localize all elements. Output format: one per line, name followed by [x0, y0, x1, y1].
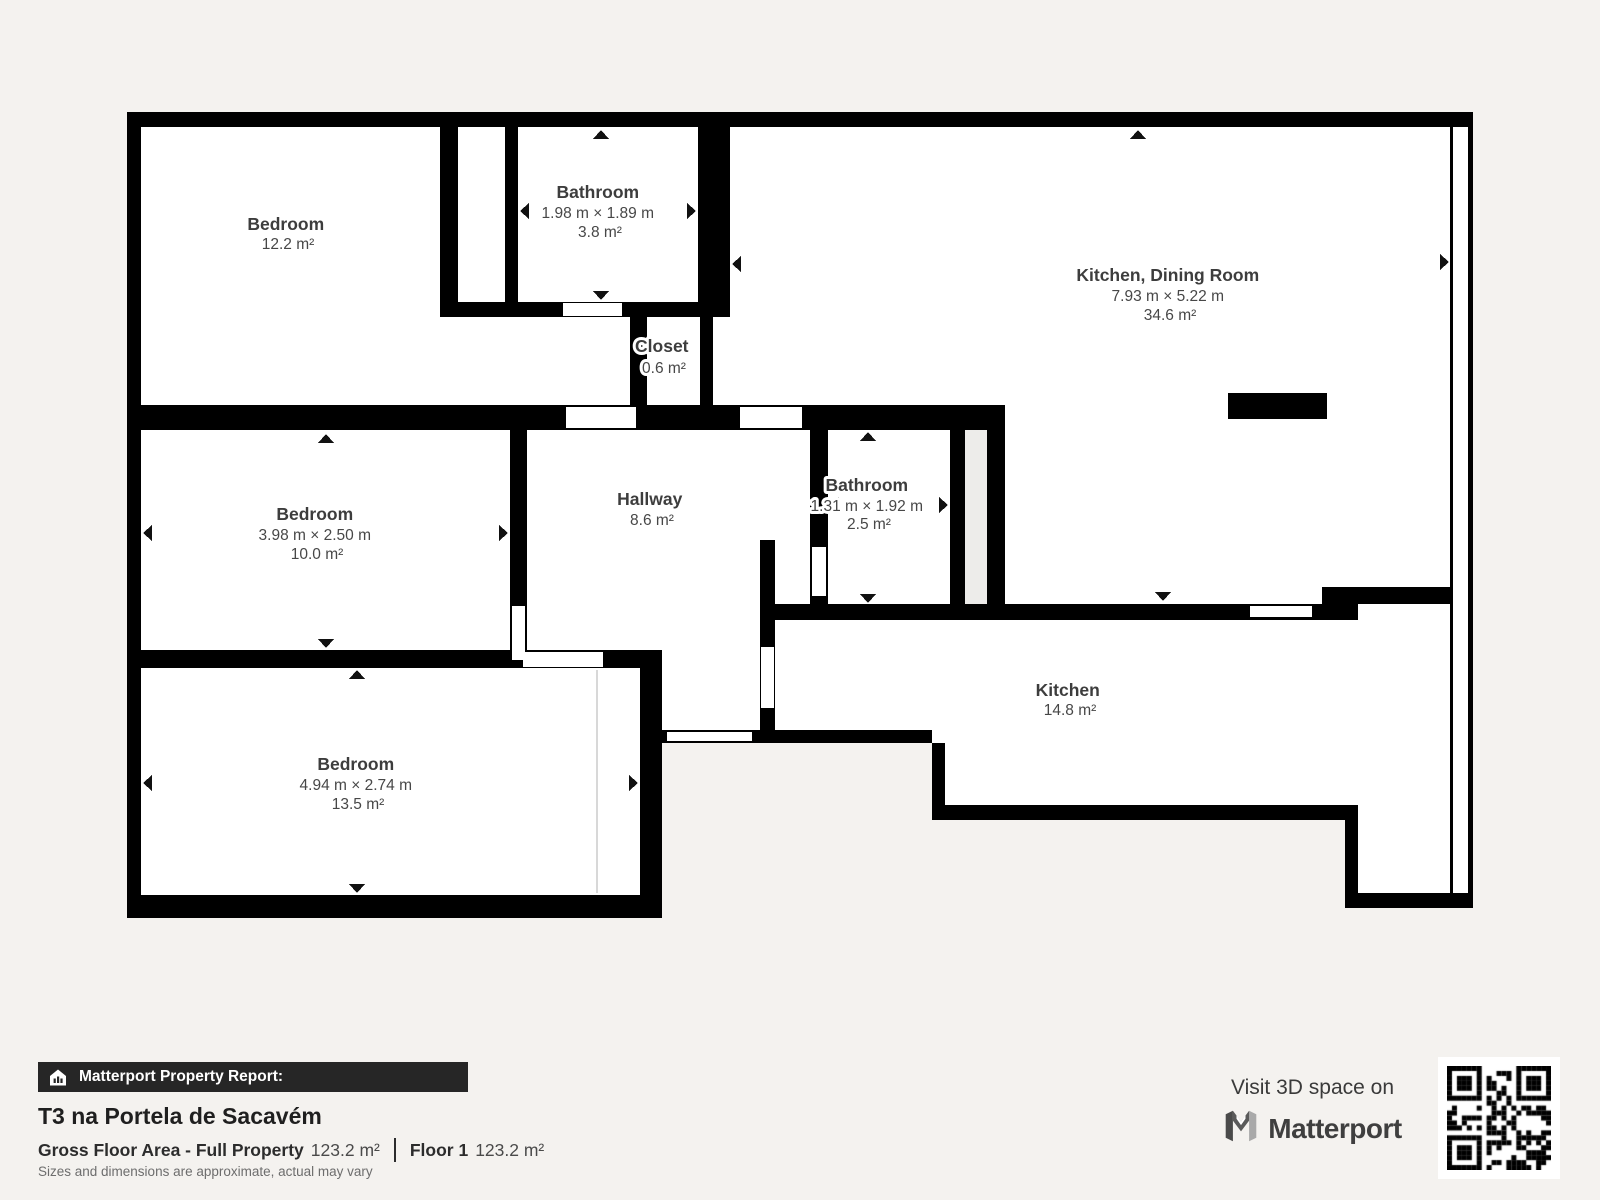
divider: [394, 1138, 396, 1162]
gross-floor-area-value: 123.2 m²: [311, 1140, 380, 1161]
door-bedroom-1: [566, 407, 636, 428]
matterport-logo: Matterport: [1195, 1108, 1430, 1149]
door-dining: [740, 407, 802, 428]
property-report-page: Bedroom 12.2 m² Bathroom 1.98 m × 1.89 m…: [0, 0, 1600, 1200]
visit-3d-block: Visit 3D space on Matterport: [1195, 1076, 1430, 1149]
floor-plan: Bedroom 12.2 m² Bathroom 1.98 m × 1.89 m…: [0, 0, 1600, 1200]
door-kitchen: [761, 647, 774, 708]
window-south-stub: [667, 732, 752, 741]
door-bathroom-2: [812, 547, 826, 596]
duct-shaft: [965, 430, 987, 605]
disclaimer-text: Sizes and dimensions are approximate, ac…: [38, 1164, 373, 1179]
report-header-bar: Matterport Property Report:: [38, 1062, 468, 1092]
floor-label: Floor 1: [410, 1140, 468, 1161]
qr-code: [1447, 1066, 1551, 1170]
matterport-wordmark: Matterport: [1268, 1113, 1401, 1145]
kitchen-counter-block: [1228, 393, 1327, 419]
qr-card: [1438, 1057, 1560, 1179]
door-bedroom-2: [512, 606, 525, 660]
visit-3d-text: Visit 3D space on: [1195, 1076, 1430, 1100]
matterport-m-icon: [1223, 1108, 1259, 1149]
floor-value: 123.2 m²: [475, 1140, 544, 1161]
house-icon: [49, 1069, 67, 1086]
opening-kitchen-wall: [1250, 606, 1312, 617]
door-bedroom-3: [523, 652, 603, 667]
door-bathroom-1: [563, 303, 622, 316]
gross-floor-area-label: Gross Floor Area - Full Property: [38, 1140, 304, 1161]
report-bar-label: Matterport Property Report:: [79, 1068, 283, 1086]
property-title: T3 na Portela de Sacavém: [38, 1103, 322, 1130]
area-summary-row: Gross Floor Area - Full Property 123.2 m…: [38, 1138, 544, 1162]
room-label-kitchen: Kitchen 14.8 m²: [1036, 680, 1105, 719]
